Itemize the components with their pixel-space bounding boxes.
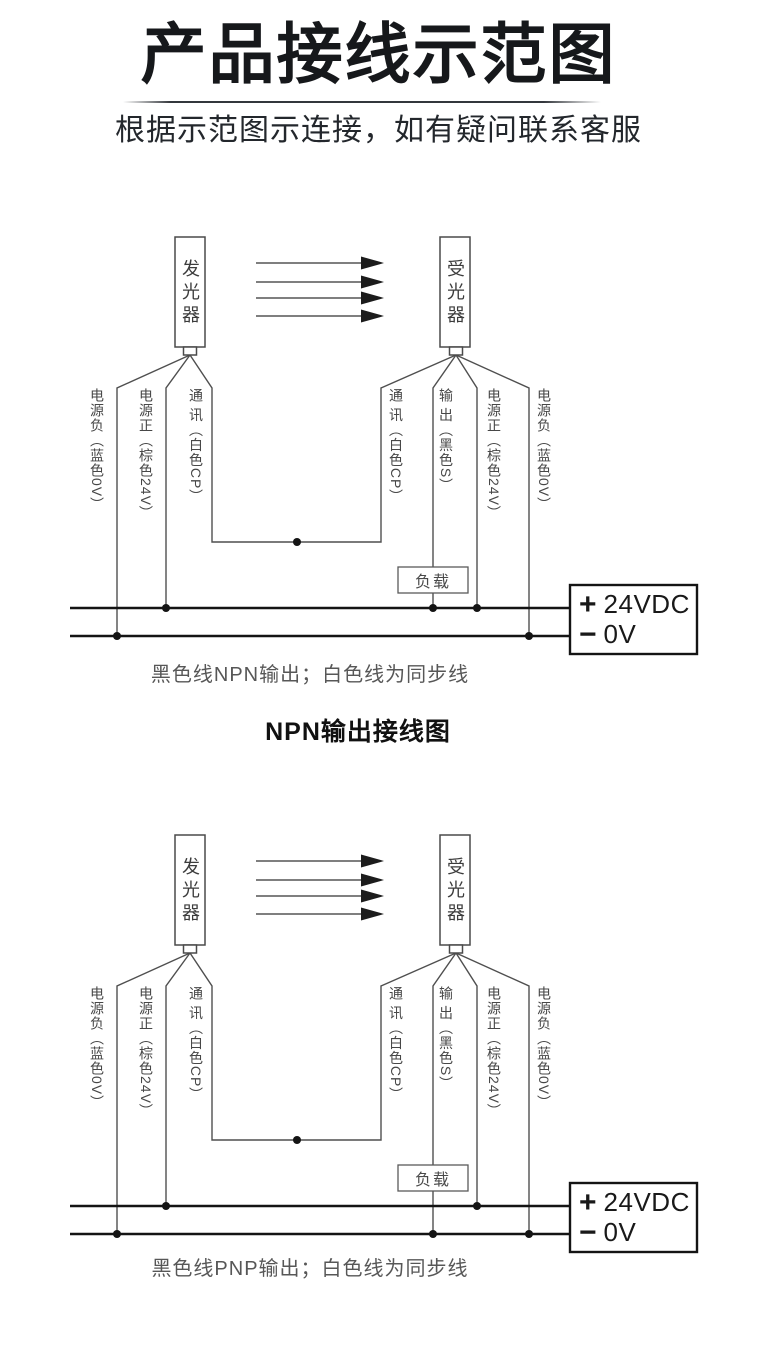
load-label: 负载 — [398, 567, 468, 593]
pnp-wiring-diagram: 发光器 受光器 电源负（蓝色0V） 电源正（棕色24V） 通 讯（白色CP） 通… — [0, 830, 757, 1270]
wire-label-power-positive-left: 电源正（棕色24V） — [136, 986, 156, 1146]
power-negative-value: 0V — [604, 1217, 637, 1248]
minus-icon: − — [579, 1219, 597, 1247]
light-beam-arrows — [256, 855, 384, 921]
emitter-label: 发光器 — [175, 835, 205, 947]
wire-label-output-right: 输 出（黑色S） — [436, 986, 456, 1146]
light-beam-arrows — [256, 257, 384, 323]
minus-icon: − — [579, 621, 597, 649]
power-positive-value: 24VDC — [604, 1187, 690, 1218]
plus-icon: + — [579, 1189, 597, 1217]
sync-wire-white — [190, 355, 456, 542]
wire-label-power-negative-left: 电源负（蓝色0V） — [87, 986, 107, 1146]
wire-label-output-right: 输 出（黑色S） — [436, 388, 456, 548]
power-positive-value: 24VDC — [604, 589, 690, 620]
wire-label-comm-right: 通 讯（白色CP） — [386, 388, 406, 548]
power-positive-row: + 24VDC — [579, 590, 697, 619]
wire-label-comm-left: 通 讯（白色CP） — [186, 986, 206, 1146]
junction-dots — [113, 538, 533, 640]
power-positive-row: + 24VDC — [579, 1188, 697, 1217]
wire-label-power-positive-right: 电源正（棕色24V） — [484, 986, 504, 1146]
page: 产品接线示范图 根据示范图示连接，如有疑问联系客服 — [0, 0, 757, 1360]
page-title: 产品接线示范图 — [0, 8, 757, 100]
emitter-label: 发光器 — [175, 237, 205, 349]
npn-section-title: NPN输出接线图 — [0, 712, 716, 748]
wire-label-power-negative-left: 电源负（蓝色0V） — [87, 388, 107, 548]
page-subtitle: 根据示范图示连接，如有疑问联系客服 — [0, 110, 757, 152]
power-bus-lines — [70, 608, 571, 636]
wire-label-power-positive-right: 电源正（棕色24V） — [484, 388, 504, 548]
npn-wiring-diagram: 发光器 受光器 电源负（蓝色0V） 电源正（棕色24V） 通 讯（白色CP） 通… — [0, 232, 757, 672]
power-negative-row: − 0V — [579, 620, 697, 649]
wire-label-comm-left: 通 讯（白色CP） — [186, 388, 206, 548]
sync-wire-white — [190, 953, 456, 1140]
wire-label-power-negative-right: 电源负（蓝色0V） — [534, 986, 554, 1146]
title-divider — [123, 101, 601, 103]
plus-icon: + — [579, 591, 597, 619]
npn-caption: 黑色线NPN输出；白色线为同步线 — [0, 658, 620, 687]
power-negative-value: 0V — [604, 619, 637, 650]
power-bus-lines — [70, 1206, 571, 1234]
receiver-label: 受光器 — [440, 835, 470, 947]
wire-label-power-negative-right: 电源负（蓝色0V） — [534, 388, 554, 548]
wire-label-comm-right: 通 讯（白色CP） — [386, 986, 406, 1146]
receiver-label: 受光器 — [440, 237, 470, 349]
power-supply-text: + 24VDC − 0V — [570, 585, 697, 654]
junction-dots — [113, 1136, 533, 1238]
wire-label-power-positive-left: 电源正（棕色24V） — [136, 388, 156, 548]
pnp-caption: 黑色线PNP输出；白色线为同步线 — [0, 1252, 620, 1281]
power-negative-row: − 0V — [579, 1218, 697, 1247]
power-supply-text: + 24VDC − 0V — [570, 1183, 697, 1252]
load-label: 负载 — [398, 1165, 468, 1191]
